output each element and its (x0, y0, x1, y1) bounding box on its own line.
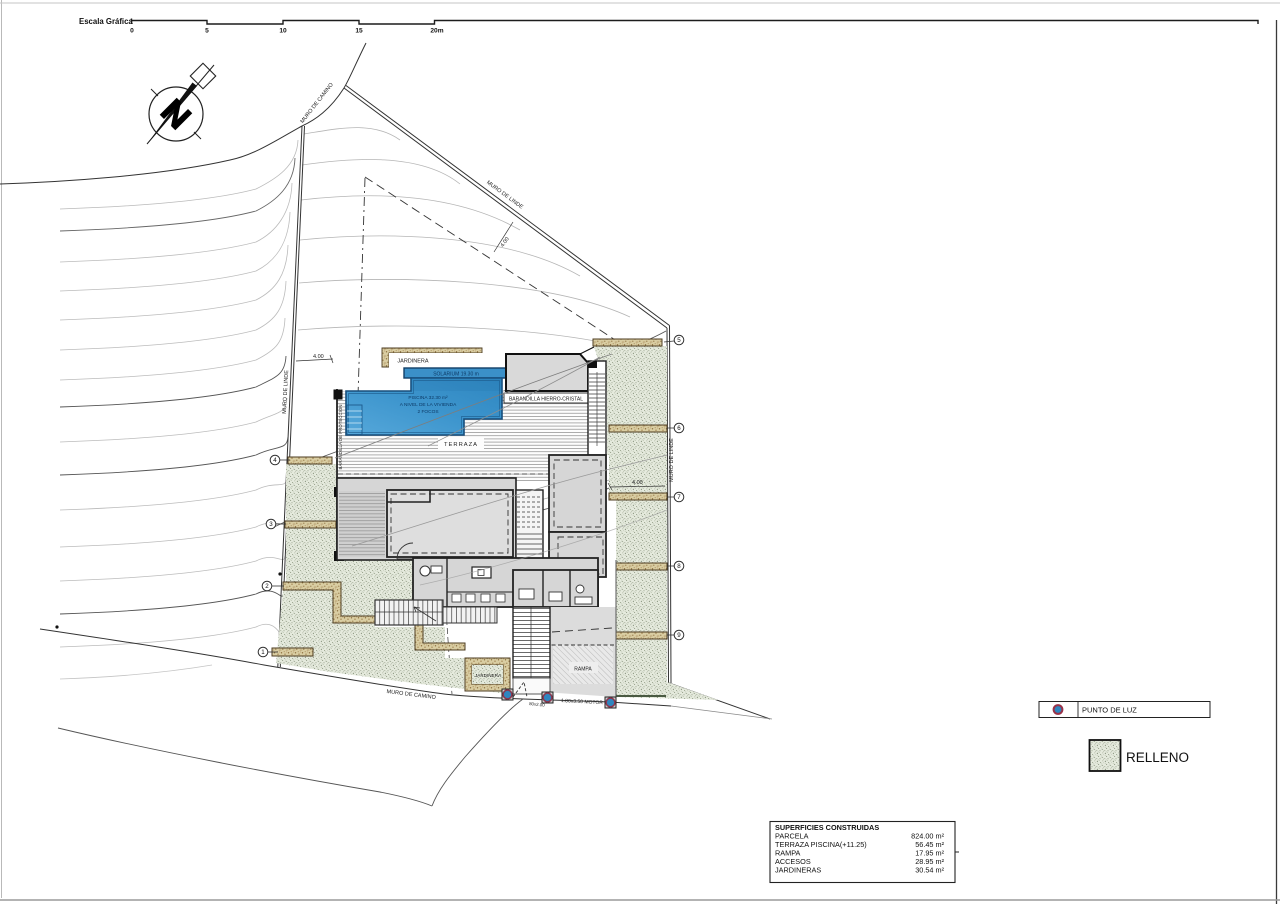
svg-text:6: 6 (677, 425, 681, 432)
svg-text:PISCINA 32.30 m²: PISCINA 32.30 m² (408, 395, 448, 401)
svg-text:BARANDILLA DE PROTECCION: BARANDILLA DE PROTECCION (338, 405, 343, 470)
svg-text:5: 5 (205, 28, 209, 35)
svg-text:4.00: 4.00 (313, 354, 324, 360)
svg-text:10: 10 (279, 28, 287, 35)
svg-text:8: 8 (677, 563, 681, 570)
svg-text:30.54 m²: 30.54 m² (915, 866, 944, 875)
svg-text:5: 5 (677, 337, 681, 344)
svg-text:JARDINERA: JARDINERA (397, 359, 429, 365)
svg-text:RAMPA: RAMPA (574, 667, 592, 673)
svg-text:JARDINERAS: JARDINERAS (775, 866, 821, 875)
svg-text:7: 7 (677, 494, 681, 501)
svg-text:4.00: 4.00 (632, 480, 643, 486)
svg-text:TERRAZA: TERRAZA (444, 442, 478, 448)
svg-text:1: 1 (261, 649, 265, 656)
svg-text:Escala Gráfica: Escala Gráfica (79, 17, 133, 26)
svg-text:2 FOCOS: 2 FOCOS (417, 409, 438, 415)
svg-text:20m: 20m (430, 28, 443, 35)
svg-text:4: 4 (273, 457, 277, 464)
svg-text:3: 3 (269, 521, 273, 528)
svg-text:0: 0 (130, 28, 134, 35)
svg-text:JARDINERA: JARDINERA (475, 673, 502, 678)
svg-text:RELLENO: RELLENO (1126, 750, 1189, 765)
svg-text:PUNTO DE LUZ: PUNTO DE LUZ (1082, 706, 1137, 715)
svg-text:MURO DE LINDE: MURO DE LINDE (669, 438, 675, 482)
svg-text:15: 15 (355, 28, 363, 35)
svg-text:2: 2 (265, 583, 269, 590)
svg-text:SOLARIUM 19.30 m: SOLARIUM 19.30 m (433, 372, 479, 378)
svg-text:9: 9 (677, 632, 681, 639)
svg-text:A NIVEL DE LA VIVIENDA: A NIVEL DE LA VIVIENDA (400, 402, 457, 408)
